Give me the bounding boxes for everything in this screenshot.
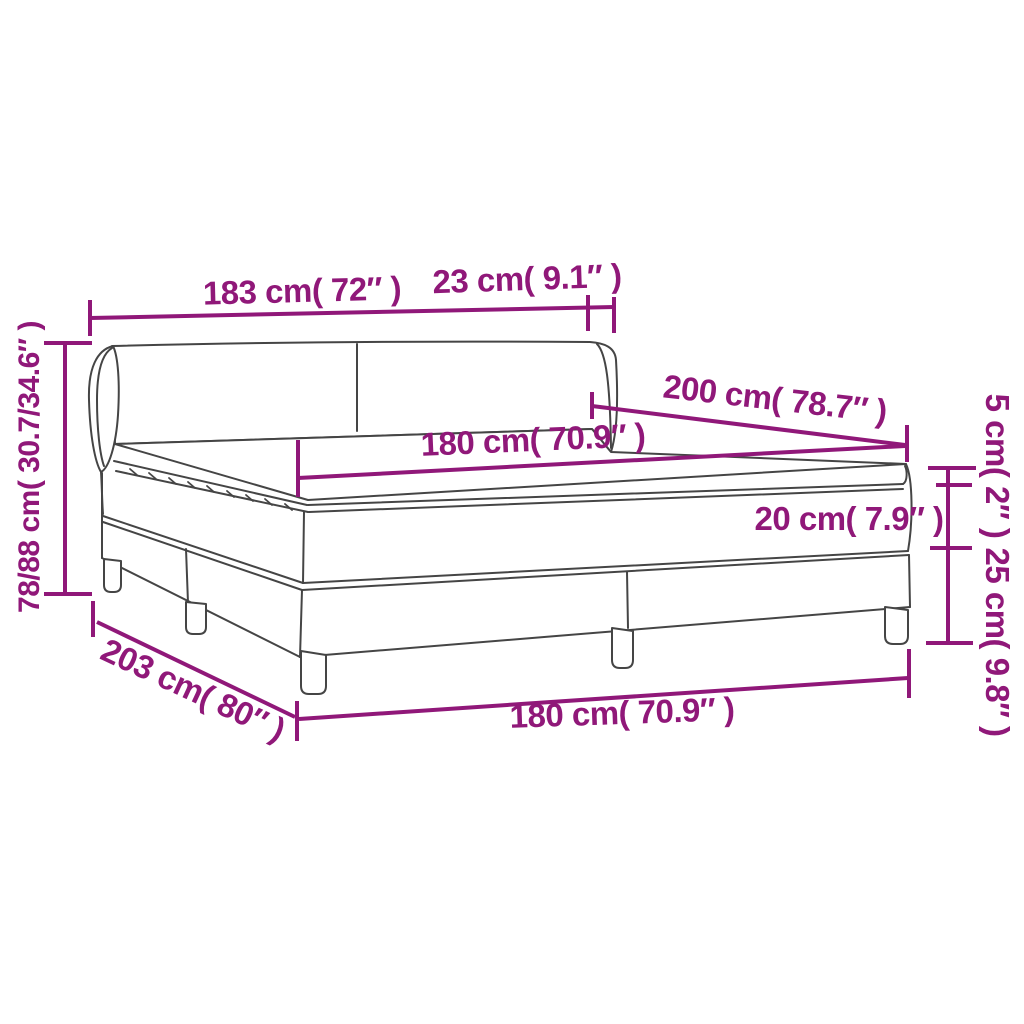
label-headboard-width: 183 cm( 72″ ) — [202, 269, 401, 312]
base-corner-edge — [300, 590, 302, 657]
dimension-diagram: 183 cm( 72″ ) 23 cm( 9.1″ ) 78/88 cm( 30… — [0, 0, 1024, 1024]
mattress-corner-edge — [303, 512, 304, 583]
topper-end-cap — [903, 466, 907, 484]
label-base-height: 25 cm( 9.8″ ) — [978, 547, 1016, 736]
base-bottom-foot-edge — [300, 607, 910, 657]
label-height-range: 78/88 cm( 30.7/34.6″ ) — [13, 321, 47, 613]
base-right-end-edge — [909, 555, 910, 607]
leg — [301, 651, 326, 694]
legs — [104, 559, 908, 694]
label-base-width-bottom: 180 cm( 70.9″ ) — [509, 690, 735, 736]
label-wing-depth: 23 cm( 9.1″ ) — [432, 257, 622, 302]
base-left-seam — [186, 549, 188, 603]
label-topper-height: 5 cm( 2″ ) — [978, 394, 1016, 539]
base-foot-seam — [627, 572, 628, 628]
label-mattress-height: 20 cm( 7.9″ ) — [754, 500, 943, 538]
headboard-left-wing-icon — [89, 346, 119, 472]
leg — [186, 602, 206, 634]
base-top-foot-edge — [302, 555, 909, 590]
leg — [104, 559, 121, 592]
base-top-left-edge — [103, 522, 302, 590]
leg — [612, 628, 633, 668]
leg — [885, 607, 908, 644]
mattress-bottom-foot-edge — [303, 551, 908, 583]
